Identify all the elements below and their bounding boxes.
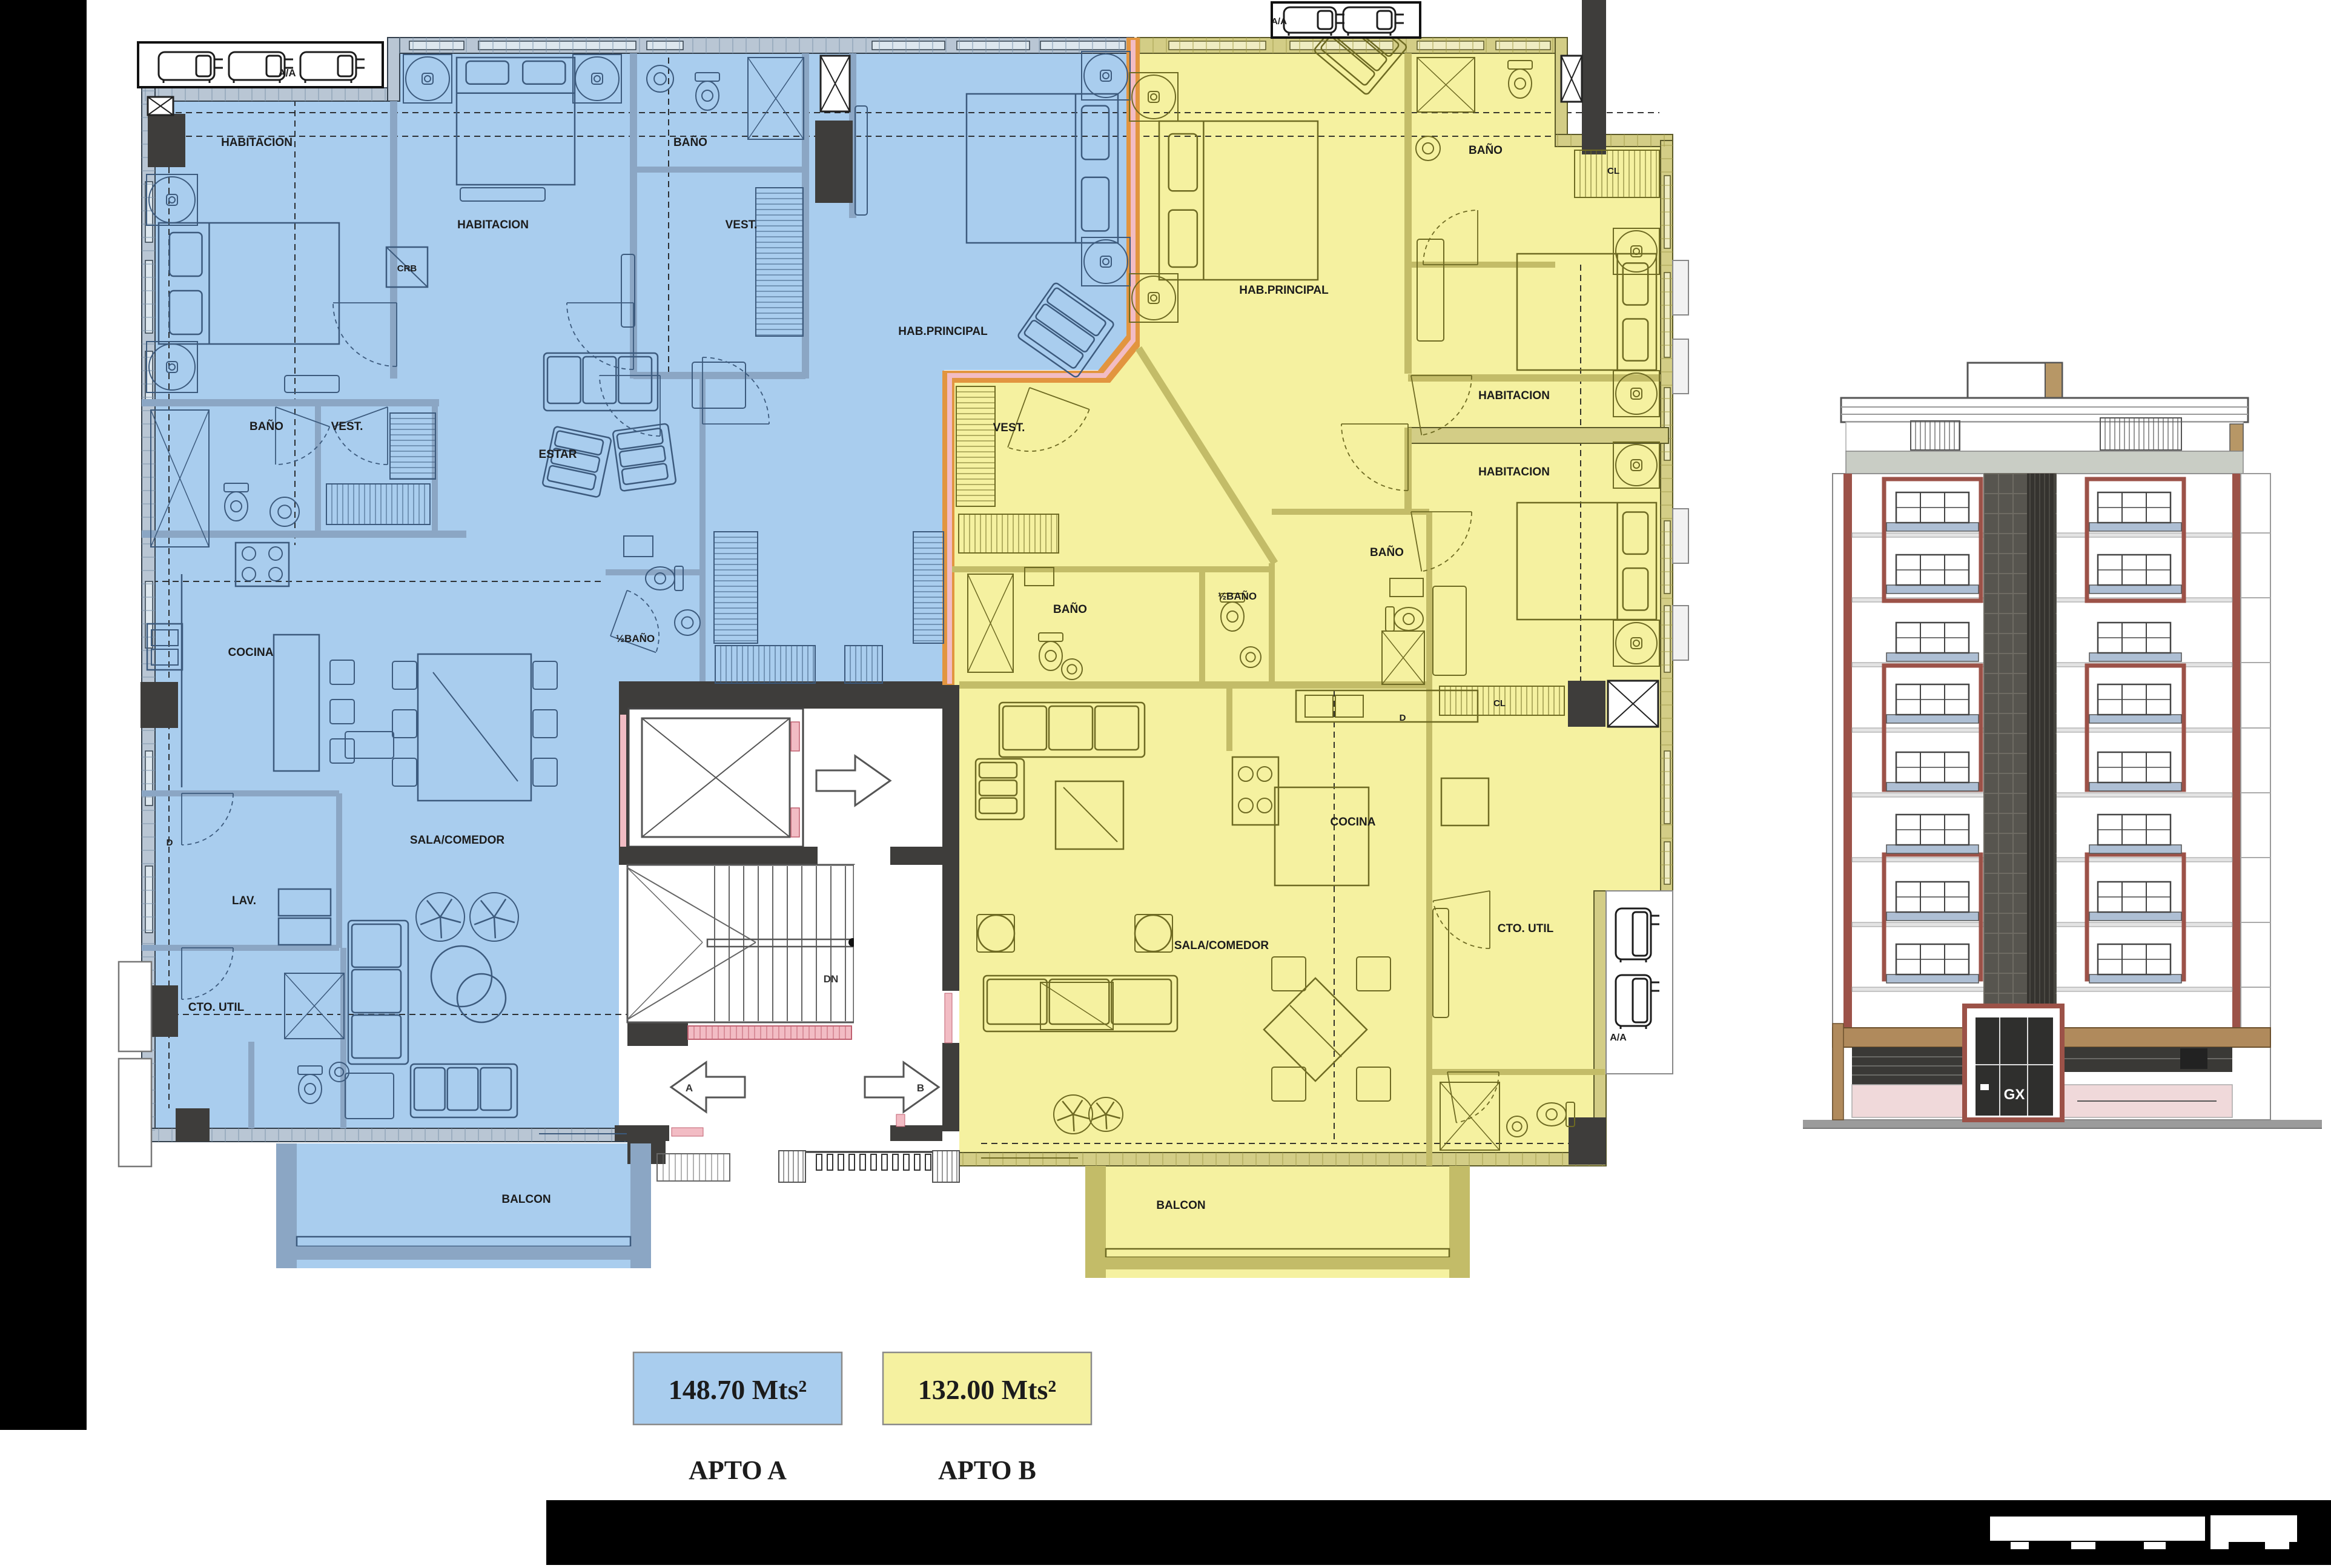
svg-text:BAÑO: BAÑO	[1053, 603, 1087, 616]
svg-text:CTO. UTIL: CTO. UTIL	[188, 1001, 245, 1014]
svg-text:½BAÑO: ½BAÑO	[616, 632, 655, 644]
svg-text:HAB.PRINCIPAL: HAB.PRINCIPAL	[898, 325, 988, 338]
svg-text:COCINA: COCINA	[1331, 816, 1376, 829]
svg-text:VEST.: VEST.	[993, 422, 1025, 434]
svg-text:B: B	[917, 1082, 924, 1094]
svg-text:CL: CL	[1607, 166, 1619, 176]
svg-text:HAB.PRINCIPAL: HAB.PRINCIPAL	[1239, 284, 1329, 297]
svg-text:CL: CL	[1493, 698, 1506, 709]
svg-text:HABITACION: HABITACION	[1478, 389, 1550, 402]
svg-text:A: A	[686, 1082, 693, 1094]
svg-text:BAÑO: BAÑO	[1469, 144, 1503, 157]
svg-text:BAÑO: BAÑO	[1370, 546, 1404, 559]
svg-text:BALCON: BALCON	[501, 1193, 551, 1206]
svg-text:CTO. UTIL: CTO. UTIL	[1498, 922, 1554, 935]
svg-text:HABITACION: HABITACION	[1478, 466, 1550, 478]
svg-text:APTO A: APTO A	[689, 1455, 787, 1485]
svg-text:DN: DN	[824, 973, 839, 985]
svg-text:D: D	[1400, 713, 1406, 723]
svg-text:A/A: A/A	[1610, 1033, 1627, 1043]
svg-text:APTO B: APTO B	[938, 1455, 1036, 1485]
svg-text:ESTAR: ESTAR	[539, 448, 577, 461]
svg-text:VEST.: VEST.	[331, 420, 363, 433]
svg-text:BALCON: BALCON	[1156, 1199, 1205, 1212]
svg-text:A/A: A/A	[1271, 16, 1287, 27]
svg-text:SALA/COMEDOR: SALA/COMEDOR	[1174, 939, 1269, 952]
svg-text:D: D	[167, 838, 173, 848]
svg-text:GX: GX	[2004, 1087, 2025, 1103]
svg-text:BAÑO: BAÑO	[250, 420, 283, 433]
svg-text:COCINA: COCINA	[228, 646, 274, 659]
svg-text:132.00 Mts²: 132.00 Mts²	[918, 1374, 1056, 1405]
svg-text:CRB: CRB	[397, 263, 417, 274]
svg-text:SALA/COMEDOR: SALA/COMEDOR	[410, 834, 505, 847]
svg-text:HABITACION: HABITACION	[221, 136, 293, 149]
svg-text:BAÑO: BAÑO	[673, 136, 707, 149]
svg-text:148.70 Mts²: 148.70 Mts²	[669, 1374, 807, 1405]
svg-text:VEST.: VEST.	[726, 219, 758, 231]
svg-text:A/A: A/A	[278, 67, 296, 79]
svg-text:½BAÑO: ½BAÑO	[1218, 590, 1257, 602]
svg-text:LAV.: LAV.	[232, 895, 256, 907]
svg-text:HABITACION: HABITACION	[457, 219, 529, 231]
